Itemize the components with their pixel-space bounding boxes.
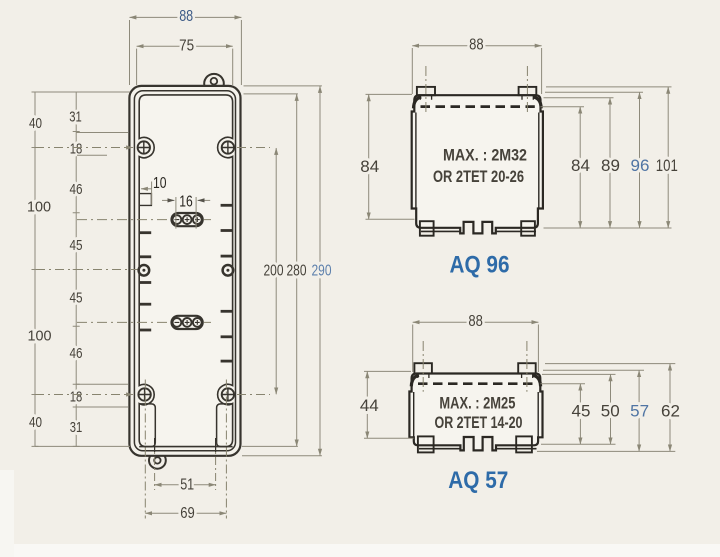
svg-text:16: 16 [179,193,193,210]
svg-text:96: 96 [631,156,650,175]
svg-text:75: 75 [179,38,194,55]
svg-text:46: 46 [70,181,83,198]
svg-text:40: 40 [29,115,42,132]
svg-text:18: 18 [70,389,83,406]
svg-text:101: 101 [656,156,678,175]
svg-text:100: 100 [28,328,52,345]
svg-text:OR 2TET 14-20: OR 2TET 14-20 [435,413,523,432]
svg-text:62: 62 [661,402,680,421]
svg-text:84: 84 [360,157,379,176]
svg-text:AQ 57: AQ 57 [448,467,508,494]
svg-text:AQ 96: AQ 96 [450,252,510,279]
svg-text:31: 31 [70,419,83,436]
svg-text:50: 50 [601,402,620,421]
svg-text:45: 45 [70,237,83,254]
svg-text:45: 45 [572,402,591,421]
svg-text:31: 31 [69,109,82,126]
svg-text:88: 88 [469,36,484,53]
svg-text:MAX. : 2M25: MAX. : 2M25 [439,393,515,412]
svg-text:OR 2TET 20-26: OR 2TET 20-26 [433,167,524,186]
svg-text:10: 10 [153,175,167,192]
svg-text:MAX. : 2M32: MAX. : 2M32 [443,146,527,165]
svg-text:290: 290 [312,263,332,280]
svg-text:88: 88 [179,8,193,25]
svg-text:40: 40 [29,414,42,431]
svg-text:57: 57 [630,402,649,421]
svg-text:280: 280 [287,263,307,280]
svg-text:69: 69 [180,505,195,522]
svg-text:44: 44 [360,396,379,415]
svg-text:45: 45 [70,290,83,307]
svg-text:100: 100 [27,199,51,216]
svg-text:46: 46 [70,345,83,362]
svg-text:89: 89 [601,156,620,175]
svg-text:51: 51 [180,477,194,494]
svg-text:200: 200 [264,263,284,280]
svg-text:84: 84 [571,156,590,175]
svg-text:88: 88 [468,313,483,330]
